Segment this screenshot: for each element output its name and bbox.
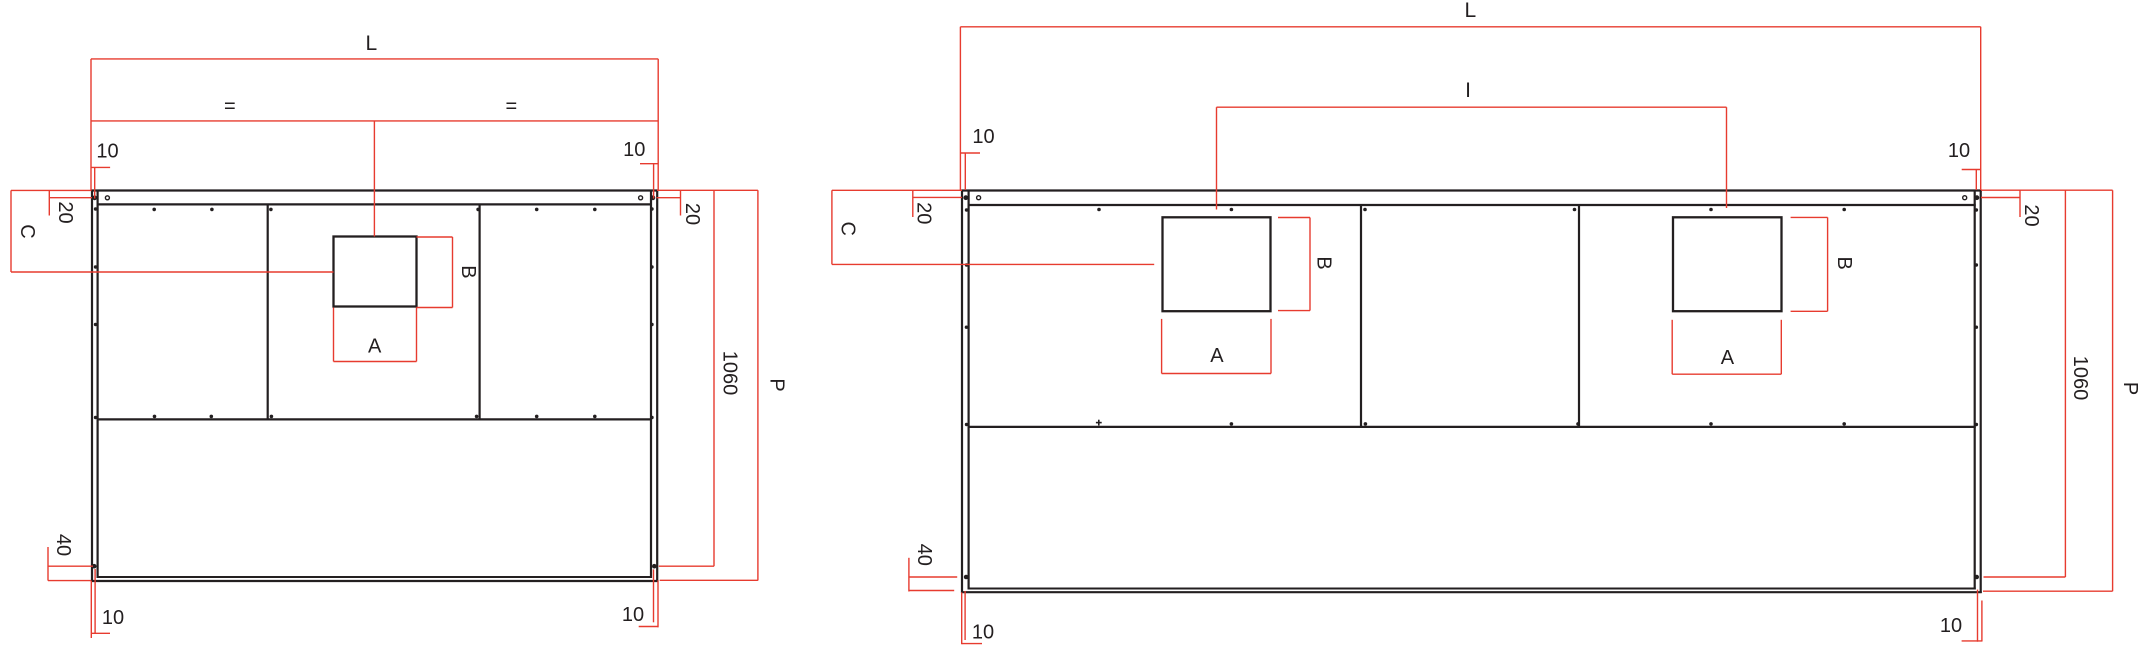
svg-text:20: 20: [2020, 204, 2042, 226]
svg-text:=: =: [224, 96, 236, 118]
svg-text:40: 40: [913, 544, 935, 566]
svg-text:10: 10: [622, 604, 644, 626]
svg-text:C: C: [837, 221, 859, 235]
svg-text:40: 40: [52, 534, 74, 556]
svg-text:1060: 1060: [2069, 356, 2091, 401]
svg-text:A: A: [1721, 347, 1735, 369]
svg-text:A: A: [1210, 345, 1224, 367]
svg-text:B: B: [1833, 257, 1855, 270]
svg-text:A: A: [368, 335, 382, 357]
svg-text:P: P: [766, 378, 788, 391]
svg-text:B: B: [457, 265, 479, 278]
svg-text:10: 10: [96, 140, 118, 162]
svg-text:C: C: [16, 224, 38, 238]
svg-text:20: 20: [681, 203, 703, 225]
svg-text:10: 10: [1948, 140, 1970, 162]
svg-text:L: L: [1465, 0, 1477, 22]
svg-text:=: =: [506, 96, 518, 118]
svg-text:10: 10: [623, 139, 645, 161]
svg-text:20: 20: [54, 201, 76, 223]
svg-text:10: 10: [972, 126, 994, 148]
svg-text:I: I: [1465, 79, 1471, 102]
svg-text:B: B: [1313, 256, 1335, 269]
svg-text:P: P: [2119, 382, 2141, 395]
svg-text:10: 10: [1940, 615, 1962, 637]
svg-text:10: 10: [972, 621, 994, 643]
svg-text:1060: 1060: [719, 351, 741, 396]
svg-text:20: 20: [913, 202, 935, 224]
svg-text:10: 10: [102, 607, 124, 629]
svg-text:L: L: [366, 32, 378, 55]
